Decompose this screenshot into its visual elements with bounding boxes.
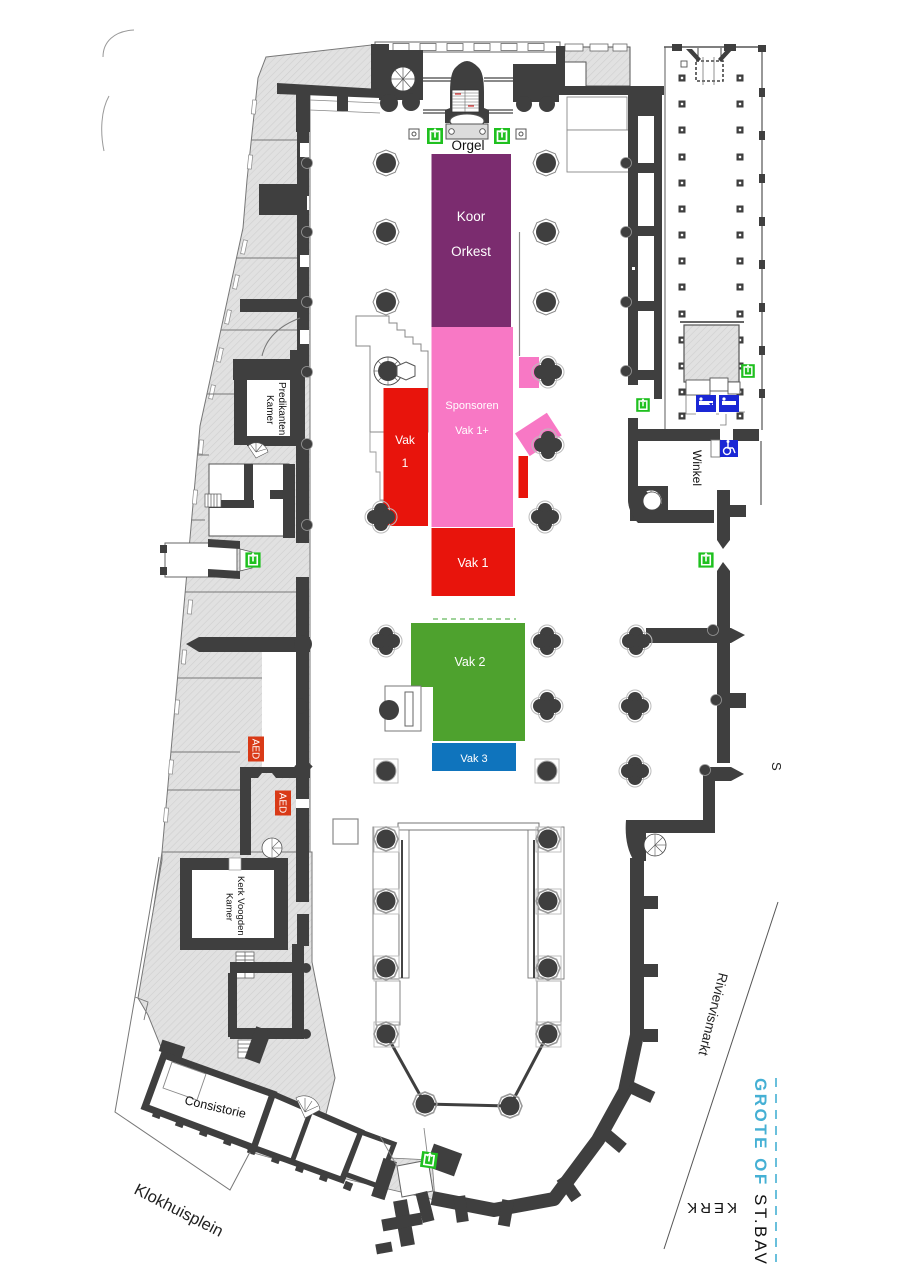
svg-text:Kerk Voogden: Kerk Voogden: [235, 876, 246, 936]
svg-text:Predikanten: Predikanten: [276, 382, 287, 435]
svg-text:AED: AED: [277, 793, 288, 814]
svg-text:Vak: Vak: [395, 433, 416, 447]
svg-text:Orkest: Orkest: [451, 244, 491, 259]
svg-text:Vak 3: Vak 3: [460, 753, 487, 765]
svg-text:AED: AED: [250, 739, 261, 760]
svg-text:Sponsoren: Sponsoren: [445, 400, 498, 412]
svg-text:Kamer: Kamer: [264, 395, 275, 425]
svg-text:Koor: Koor: [457, 209, 486, 224]
svg-text:Winkel: Winkel: [690, 450, 704, 486]
svg-text:Vak 2: Vak 2: [454, 655, 485, 669]
svg-text:Kamer: Kamer: [224, 893, 235, 921]
svg-text:Orgel: Orgel: [451, 138, 484, 153]
svg-text:GROTE OF ST.BAV: GROTE OF ST.BAV: [751, 1078, 770, 1266]
svg-text:KERK: KERK: [684, 1199, 737, 1216]
svg-text:S: S: [769, 762, 784, 771]
svg-text:Vak 1: Vak 1: [457, 556, 488, 570]
svg-text:Vak 1+: Vak 1+: [455, 425, 489, 437]
svg-text:1: 1: [402, 456, 409, 470]
